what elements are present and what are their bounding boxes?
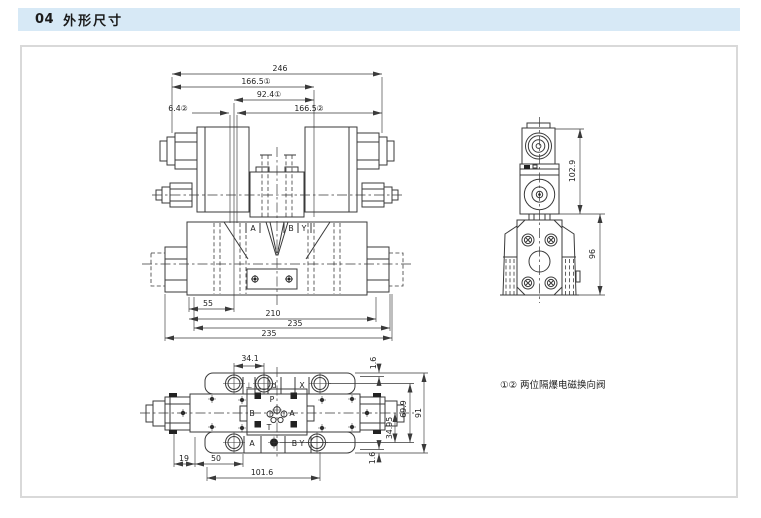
dim-1-6-top: 1.6 bbox=[369, 357, 378, 369]
legend-note: ①② 两位隔爆电磁换向阀 bbox=[500, 379, 606, 391]
front-view-dimensions bbox=[165, 74, 392, 341]
dim-50: 50 bbox=[211, 454, 221, 463]
port-label-t: T bbox=[266, 423, 272, 432]
dim-55: 55 bbox=[203, 299, 213, 308]
dim-166-5-2: 166.5② bbox=[294, 104, 323, 113]
dim-6-4-2: 6.4② bbox=[168, 104, 187, 113]
dim-69-9: 69.9 bbox=[399, 400, 408, 417]
dim-246: 246 bbox=[273, 64, 288, 73]
top-view-labels: 34.1 1.6 91 69.9 34.95 1.6 19 50 101.6 ⊥… bbox=[179, 354, 423, 477]
port-label-p: P bbox=[270, 395, 275, 404]
dim-235-upper: 235 bbox=[288, 319, 303, 328]
port-label-y: Y bbox=[301, 224, 307, 233]
section-number: 04 bbox=[35, 12, 54, 27]
port-label-by-bottom: B Y bbox=[292, 439, 305, 448]
page-title: 外形尺寸 bbox=[63, 10, 123, 29]
dim-34-95: 34.95 bbox=[385, 417, 394, 439]
port-label-b-center: B bbox=[249, 409, 254, 418]
dim-166-5-1: 166.5① bbox=[241, 77, 270, 86]
side-view-shapes bbox=[500, 117, 580, 303]
dim-92-4-1: 92.4① bbox=[257, 90, 281, 99]
dim-210: 210 bbox=[266, 309, 281, 318]
dim-235-lower: 235 bbox=[262, 329, 277, 338]
side-view: 102.9 96 bbox=[500, 117, 605, 303]
dim-91: 91 bbox=[414, 408, 423, 418]
port-label-b: B bbox=[288, 224, 293, 233]
technical-drawing: 246 166.5① 92.4① 6.4② 166.5② 55 210 235 … bbox=[22, 47, 736, 496]
side-view-labels: 102.9 96 bbox=[568, 160, 597, 259]
port-label-d: d bbox=[272, 381, 277, 390]
port-label-x: X bbox=[299, 381, 305, 390]
top-view-shapes bbox=[140, 367, 414, 459]
front-view: 246 166.5① 92.4① 6.4② 166.5② 55 210 235 … bbox=[142, 64, 414, 341]
port-label-a-bottom: A bbox=[249, 439, 255, 448]
legend: ①② 两位隔爆电磁换向阀 bbox=[500, 379, 606, 391]
top-view: 34.1 1.6 91 69.9 34.95 1.6 19 50 101.6 ⊥… bbox=[140, 354, 428, 481]
dim-102-9: 102.9 bbox=[568, 160, 577, 182]
dim-1-6-bottom: 1.6 bbox=[368, 452, 377, 464]
dim-19: 19 bbox=[179, 454, 189, 463]
front-view-shapes bbox=[142, 127, 414, 305]
port-label-a: A bbox=[250, 224, 256, 233]
dim-96: 96 bbox=[588, 249, 597, 259]
dim-34-1: 34.1 bbox=[241, 354, 258, 363]
drawing-sheet: 246 166.5① 92.4① 6.4② 166.5② 55 210 235 … bbox=[20, 45, 738, 498]
dim-101-6: 101.6 bbox=[251, 468, 273, 477]
port-label-l: ⊥ bbox=[246, 381, 253, 390]
port-label-a-center: A bbox=[289, 409, 295, 418]
section-header: 04 外形尺寸 bbox=[18, 8, 740, 31]
catalog-page: 04 外形尺寸 bbox=[0, 0, 761, 518]
